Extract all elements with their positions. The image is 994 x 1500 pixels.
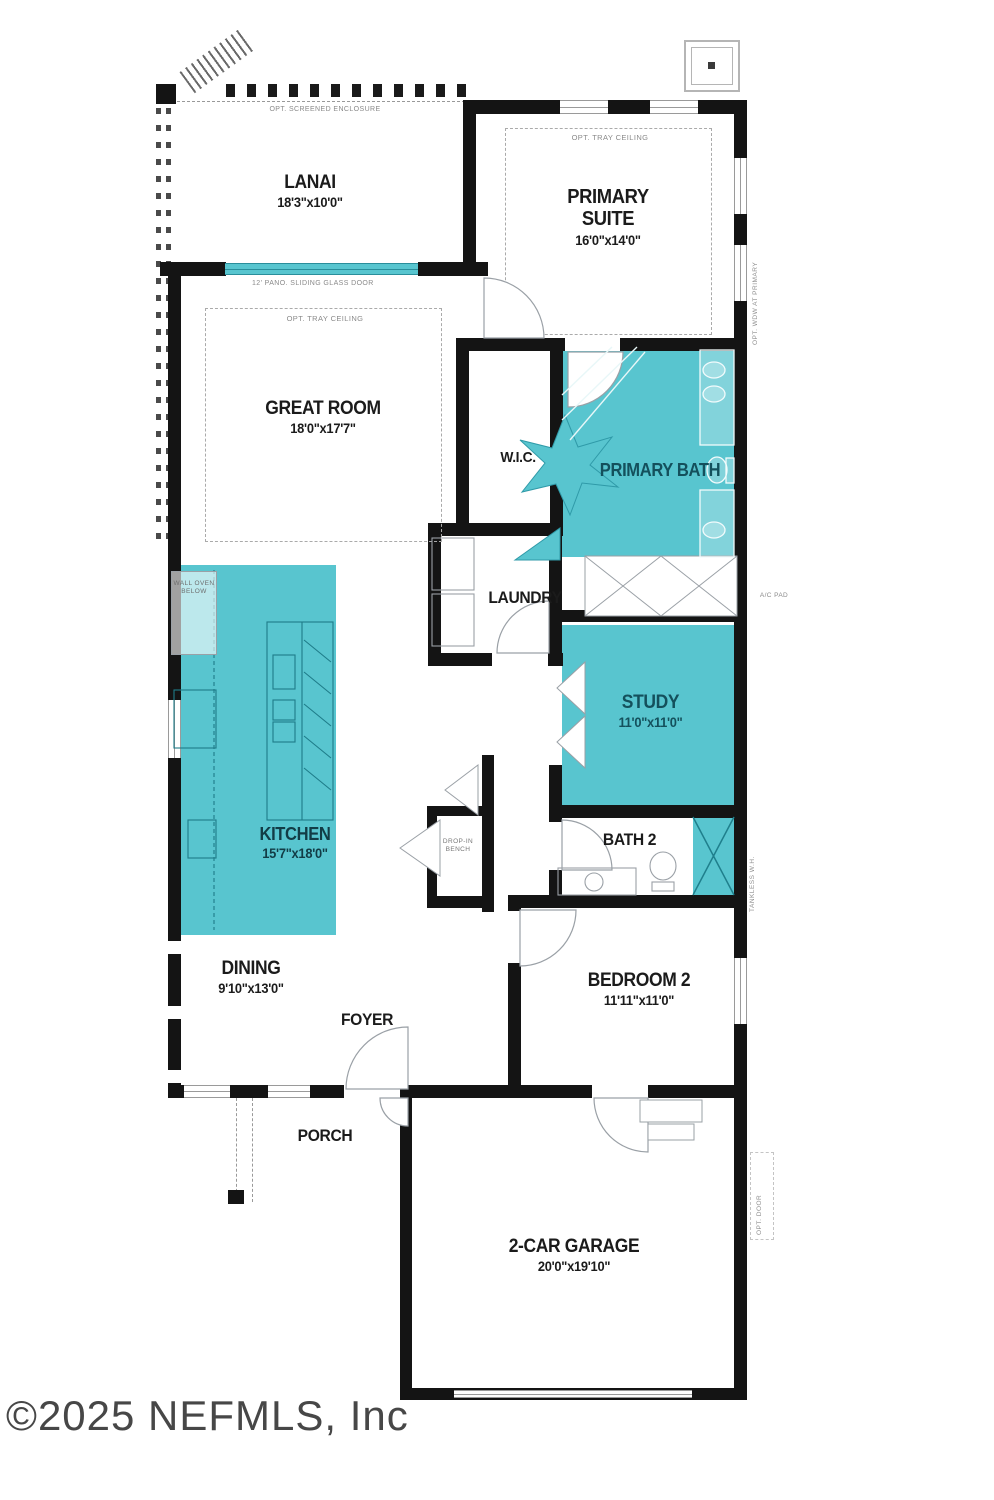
window [184, 1085, 230, 1098]
opt-door-note: OPT. DOOR [756, 1165, 763, 1235]
window [168, 700, 181, 758]
room-label-porch: PORCH [276, 1126, 374, 1145]
wall [482, 755, 494, 912]
room-name: LANAI [232, 172, 388, 193]
door-opening [492, 653, 548, 666]
door-arc [497, 601, 549, 653]
wall [463, 114, 476, 276]
porch-dash [236, 1098, 237, 1202]
wall [427, 806, 437, 908]
window [268, 1085, 310, 1098]
room-label-lanai: LANAI 18'3"x10'0" [225, 172, 395, 210]
wall [427, 806, 494, 816]
room-dims: 18'0"x17'7" [236, 420, 411, 436]
room-name: FOYER [325, 1010, 410, 1029]
door-opening [565, 338, 620, 351]
room-name: LAUNDRY [465, 588, 585, 607]
watermark: ©2025 NEFMLS, Inc [6, 1392, 409, 1440]
room-label-wic: W.I.C. [479, 450, 557, 467]
room-dims: 15'7"x18'0" [245, 845, 344, 861]
room-name: BATH 2 [577, 830, 683, 849]
wall [168, 1085, 747, 1098]
screen-dash-col [156, 108, 161, 548]
room-name: PRIMARY SUITE [550, 186, 666, 231]
room-name: BEDROOM 2 [557, 970, 721, 991]
wall-oven-note: WALL OVEN BELOW [172, 572, 216, 596]
wall [428, 523, 563, 536]
wall [508, 963, 521, 1098]
equipment-dot [708, 62, 715, 69]
toilet-tank [652, 882, 674, 891]
room-name: PRIMARY BATH [597, 460, 722, 480]
wall [427, 896, 494, 908]
drop-bench-note: DROP-IN BENCH [432, 838, 484, 854]
room-label-primary-suite: PRIMARY SUITE 16'0"x14'0" [545, 186, 671, 248]
primary-bath-fill [562, 345, 734, 557]
room-label-great-room: GREAT ROOM 18'0"x17'7" [228, 398, 418, 436]
room-name: GREAT ROOM [236, 398, 411, 419]
floor-plan: WALL OVEN BELOW LANAI 18'3"x10'0" PRIMAR… [0, 0, 994, 1500]
window [560, 100, 608, 114]
room-dims: 18'3"x10'0" [232, 194, 388, 210]
wall [549, 613, 562, 663]
wall [549, 610, 747, 622]
room-label-study: STUDY 11'0"x11'0" [583, 692, 718, 730]
wall [168, 262, 181, 1098]
wall [549, 805, 747, 818]
window [734, 245, 747, 301]
front-door-opening [344, 1085, 408, 1098]
screened-enclosure-note: OPT. SCREENED ENCLOSURE [240, 106, 410, 115]
room-name: DINING [187, 958, 316, 979]
window [168, 941, 181, 954]
wall-oven-box: WALL OVEN BELOW [171, 571, 217, 655]
wall [456, 338, 563, 351]
bath2-fixtures [558, 852, 676, 895]
window [734, 958, 747, 1024]
room-dims: 20'0"x19'10" [469, 1258, 679, 1274]
screen-dash-line [172, 101, 470, 102]
ac-pad-note: A/C PAD [752, 592, 796, 600]
equipment-pad-icon [684, 40, 740, 92]
room-dims: 16'0"x14'0" [550, 232, 666, 248]
door-arc [520, 910, 576, 966]
room-label-primary-bath: PRIMARY BATH [592, 460, 728, 480]
door-arc [346, 1027, 408, 1089]
vanity [558, 868, 636, 895]
wall [156, 84, 176, 104]
porch-dash [252, 1098, 253, 1202]
room-name: STUDY [588, 692, 712, 713]
opt-window-note: OPT. WDW AT PRIMARY [752, 195, 759, 345]
room-label-bath-2: BATH 2 [572, 830, 687, 849]
wall [508, 905, 521, 911]
room-label-laundry: LAUNDRY [460, 588, 590, 607]
tray-note-primary: OPT. TRAY CEILING [530, 133, 690, 142]
wall [400, 1085, 412, 1400]
door-arc [594, 1098, 648, 1152]
wall [428, 523, 441, 666]
wall [418, 262, 488, 276]
room-label-dining: DINING 9'10"x13'0" [181, 958, 321, 996]
screen-enclosure-hatch [226, 84, 468, 97]
lanai-sliding-door [225, 263, 418, 275]
room-name: PORCH [280, 1126, 370, 1145]
sink-icon [585, 873, 603, 891]
wall [549, 817, 562, 822]
garage-door-opening [592, 1085, 648, 1098]
porch-post [228, 1190, 244, 1204]
wall [550, 338, 563, 536]
garage-steps [640, 1100, 702, 1140]
fixtures-overlay [0, 0, 994, 1500]
room-dims: 9'10"x13'0" [187, 980, 316, 996]
window [734, 158, 747, 214]
room-dims: 11'0"x11'0" [588, 714, 712, 730]
room-dims: 11'11"x11'0" [557, 992, 721, 1008]
room-name: 2-CAR GARAGE [469, 1236, 679, 1257]
room-name: KITCHEN [245, 824, 344, 844]
garage-overhead-door [454, 1390, 692, 1398]
tray-note-great: OPT. TRAY CEILING [240, 314, 410, 323]
room-label-foyer: FOYER [321, 1010, 413, 1029]
wall [456, 338, 469, 536]
linen-x-box [585, 556, 737, 616]
room-name: W.I.C. [482, 450, 554, 467]
wall [508, 895, 747, 908]
room-label-kitchen: KITCHEN 15'7"x18'0" [241, 824, 349, 861]
bath2-shower-fill [693, 817, 734, 897]
window [168, 1070, 181, 1083]
room-label-bedroom-2: BEDROOM 2 11'11"x11'0" [550, 970, 728, 1008]
toilet-icon [650, 852, 676, 880]
room-label-garage: 2-CAR GARAGE 20'0"x19'10" [460, 1236, 688, 1274]
window [168, 1006, 181, 1019]
window [650, 100, 698, 114]
tankless-note: TANKLESS W.H. [749, 822, 756, 912]
pano-door-note: 12' PANO. SLIDING GLASS DOOR [252, 280, 462, 289]
